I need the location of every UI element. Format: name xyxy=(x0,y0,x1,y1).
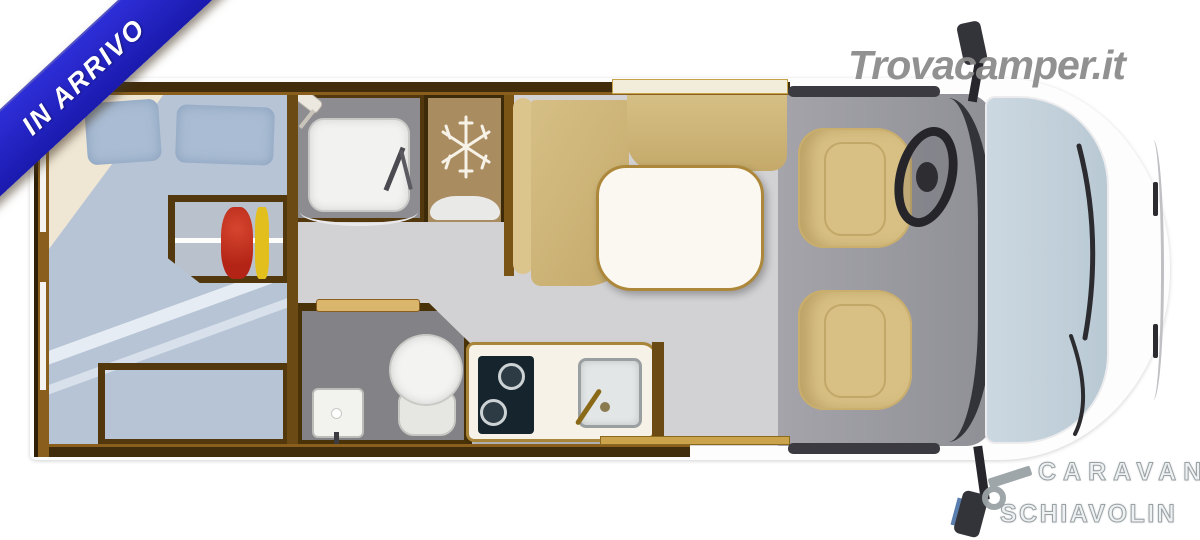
flag-white xyxy=(1036,490,1040,498)
dinette-window xyxy=(612,79,788,94)
wall-bottom xyxy=(34,444,690,457)
kitchen-faucet-knob xyxy=(600,402,610,412)
flag-red xyxy=(1036,490,1040,498)
hob-burner xyxy=(480,399,507,426)
passenger-seat xyxy=(798,290,912,410)
windshield xyxy=(985,96,1109,444)
toilet-bowl xyxy=(389,334,463,406)
italian-flag-bar xyxy=(1036,490,1180,498)
pillow xyxy=(84,98,162,165)
kitchen-end-panel xyxy=(652,342,664,444)
shower-glass-door xyxy=(300,198,418,226)
flag-green xyxy=(1036,490,1040,498)
cab-door-sill xyxy=(788,443,940,454)
camper-floorplan-image: Trovacamper.it CARAVAN SCHIAVOLIN IN ARR… xyxy=(0,0,1200,540)
bedroom-divider-wall xyxy=(287,94,298,446)
dinette-table xyxy=(596,165,764,291)
wardrobe-bottom xyxy=(98,363,290,446)
dinette-backrest-pad xyxy=(513,98,533,274)
pillow xyxy=(175,104,275,165)
dealer-name-line1: CARAVAN xyxy=(1038,458,1200,487)
front-trim xyxy=(1153,324,1158,358)
front-bumper-line xyxy=(1146,140,1164,400)
dinette-bench-top xyxy=(627,95,787,171)
watermark-trovacamper: Trovacamper.it xyxy=(848,42,1178,89)
dealer-name-line2: SCHIAVOLIN xyxy=(1000,500,1177,529)
bathroom-door xyxy=(316,299,420,312)
fridge-shelf xyxy=(430,196,500,220)
kitchen-sink xyxy=(578,358,642,428)
dealer-logo: CARAVAN SCHIAVOLIN xyxy=(980,458,1200,538)
hanging-clothes-red xyxy=(221,207,253,279)
steering-hub xyxy=(916,162,938,192)
entry-threshold xyxy=(600,436,790,445)
hob-burner xyxy=(498,363,525,390)
hanging-clothes-yellow xyxy=(255,207,269,279)
wiper-icon xyxy=(987,98,1111,446)
front-trim xyxy=(1153,182,1158,216)
bathroom-sink-drain xyxy=(331,408,342,419)
wardrobe-mid xyxy=(168,195,290,283)
rear-window xyxy=(40,282,46,390)
snowflake-icon xyxy=(437,110,495,184)
